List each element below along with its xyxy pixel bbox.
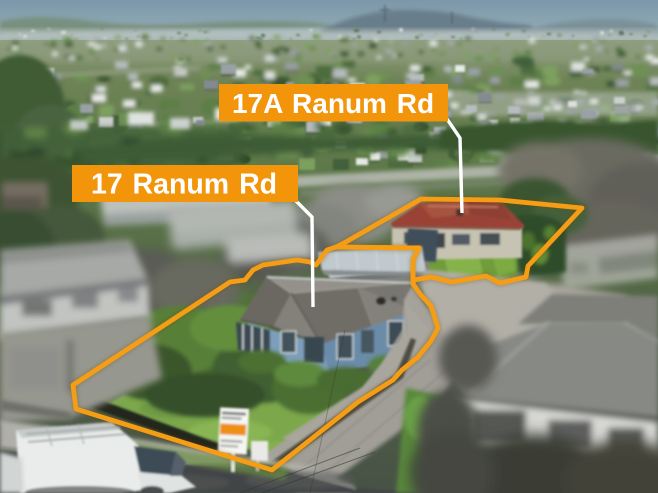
svg-text:17 Ranum Rd: 17 Ranum Rd (91, 169, 277, 201)
svg-text:17A Ranum Rd: 17A Ranum Rd (232, 88, 434, 119)
